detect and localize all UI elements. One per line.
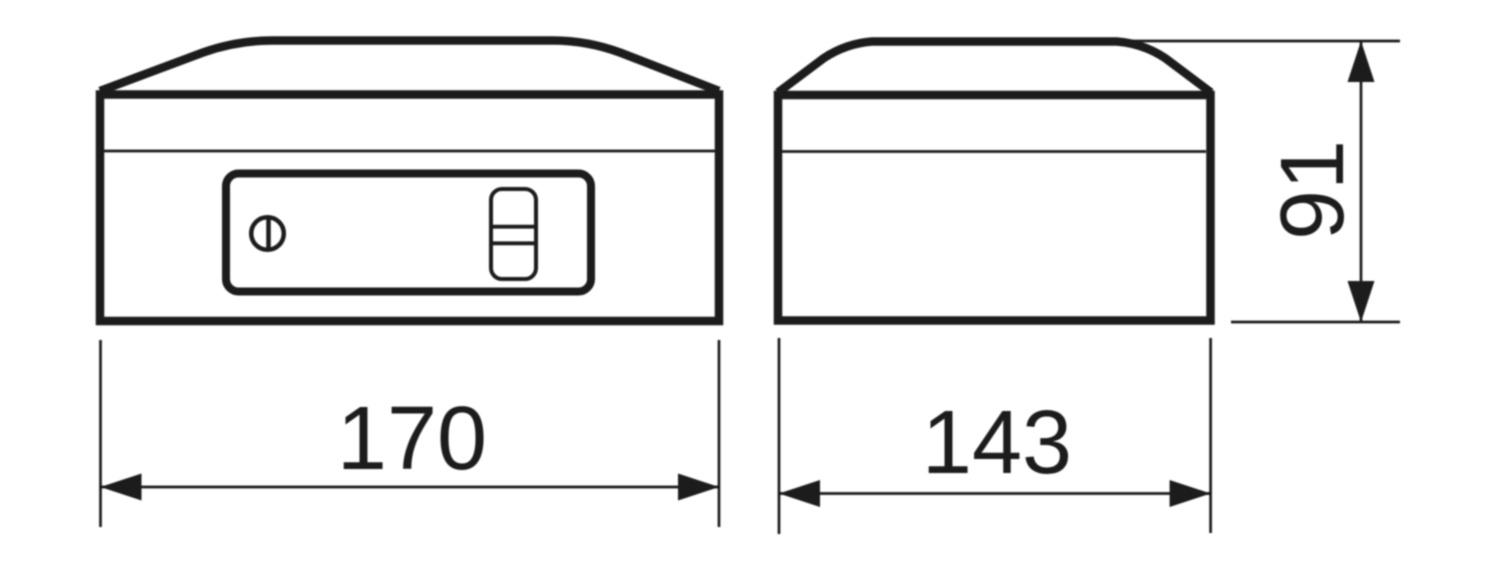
svg-text:143: 143 — [922, 393, 1072, 493]
svg-text:91: 91 — [1263, 140, 1363, 240]
svg-text:170: 170 — [337, 389, 487, 489]
